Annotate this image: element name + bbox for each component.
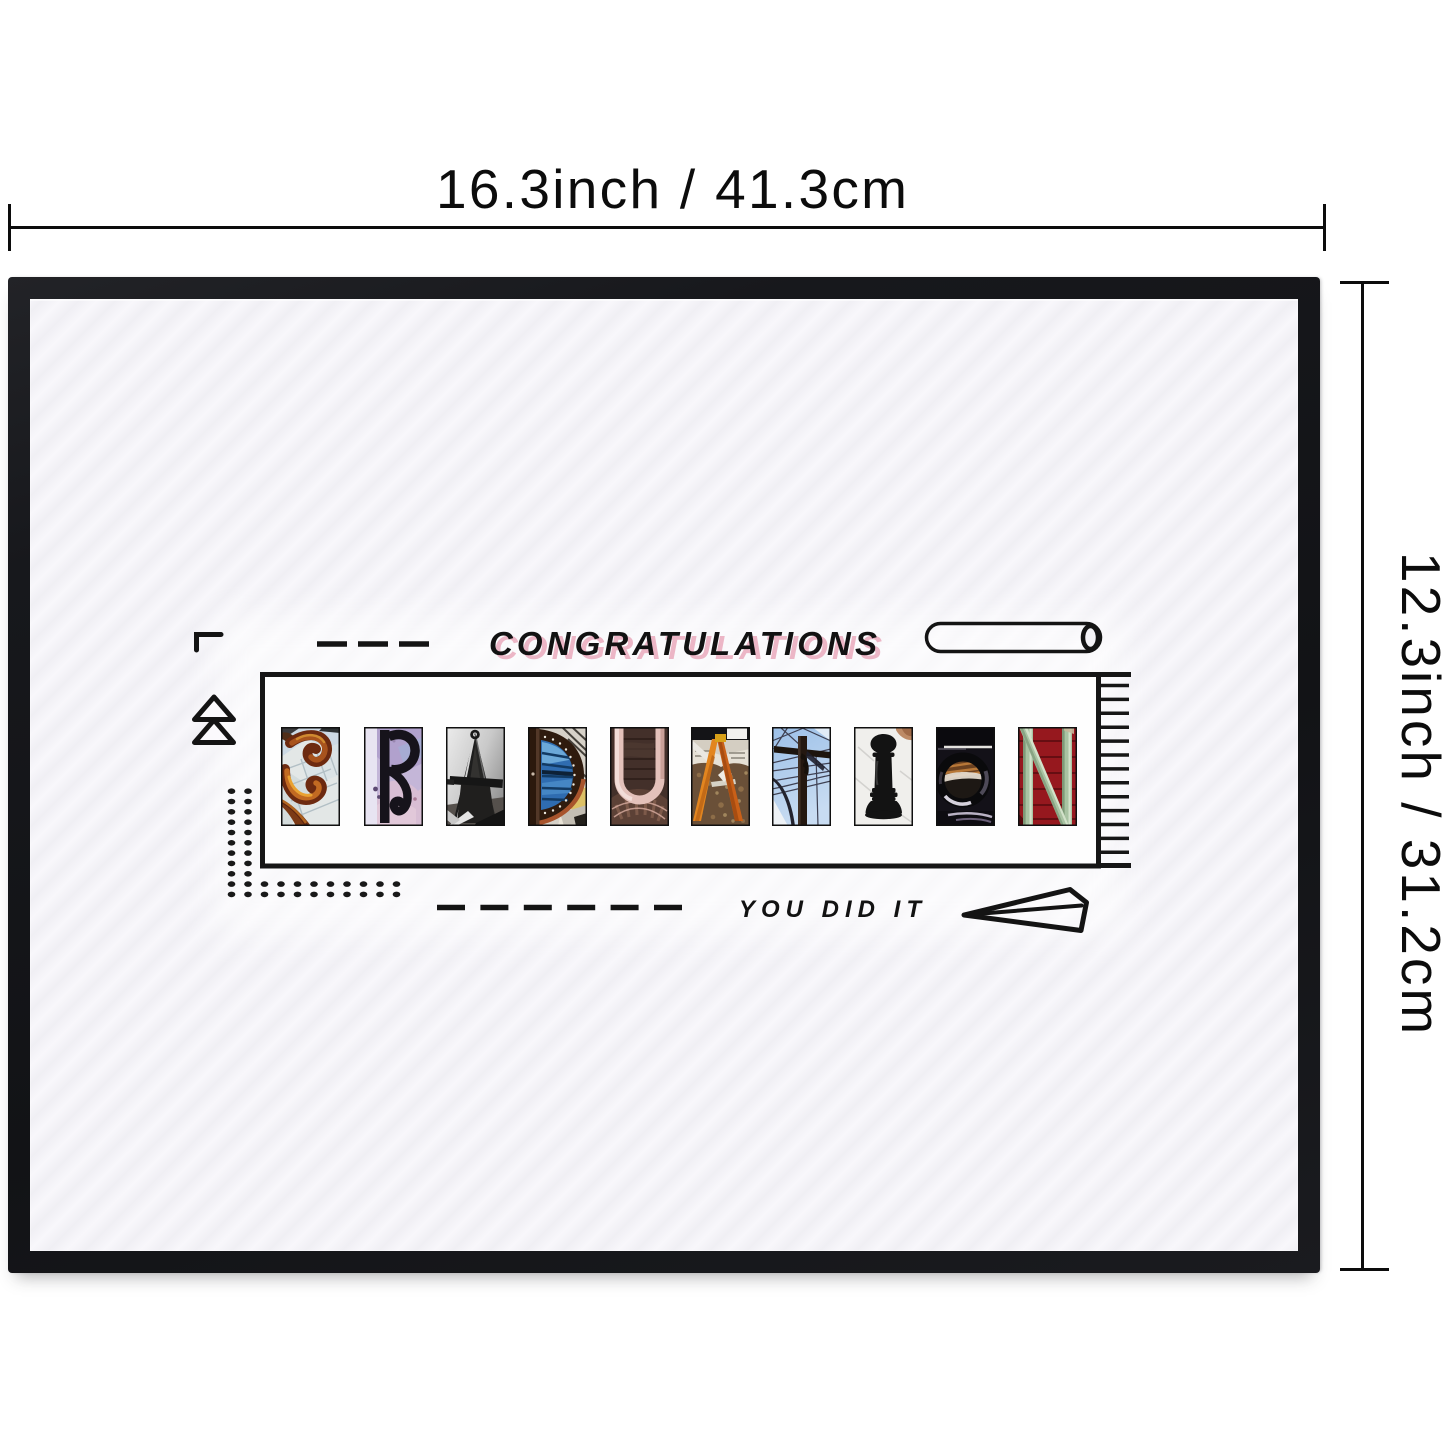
- svg-text:16.3inch / 41.3cm: 16.3inch / 41.3cm: [436, 158, 909, 220]
- svg-text:YOU DID IT: YOU DID IT: [739, 896, 927, 923]
- svg-text:CONGRATULATIONS: CONGRATULATIONS: [489, 625, 881, 662]
- svg-text:12.3inch / 31.2cm: 12.3inch / 31.2cm: [1390, 552, 1445, 1037]
